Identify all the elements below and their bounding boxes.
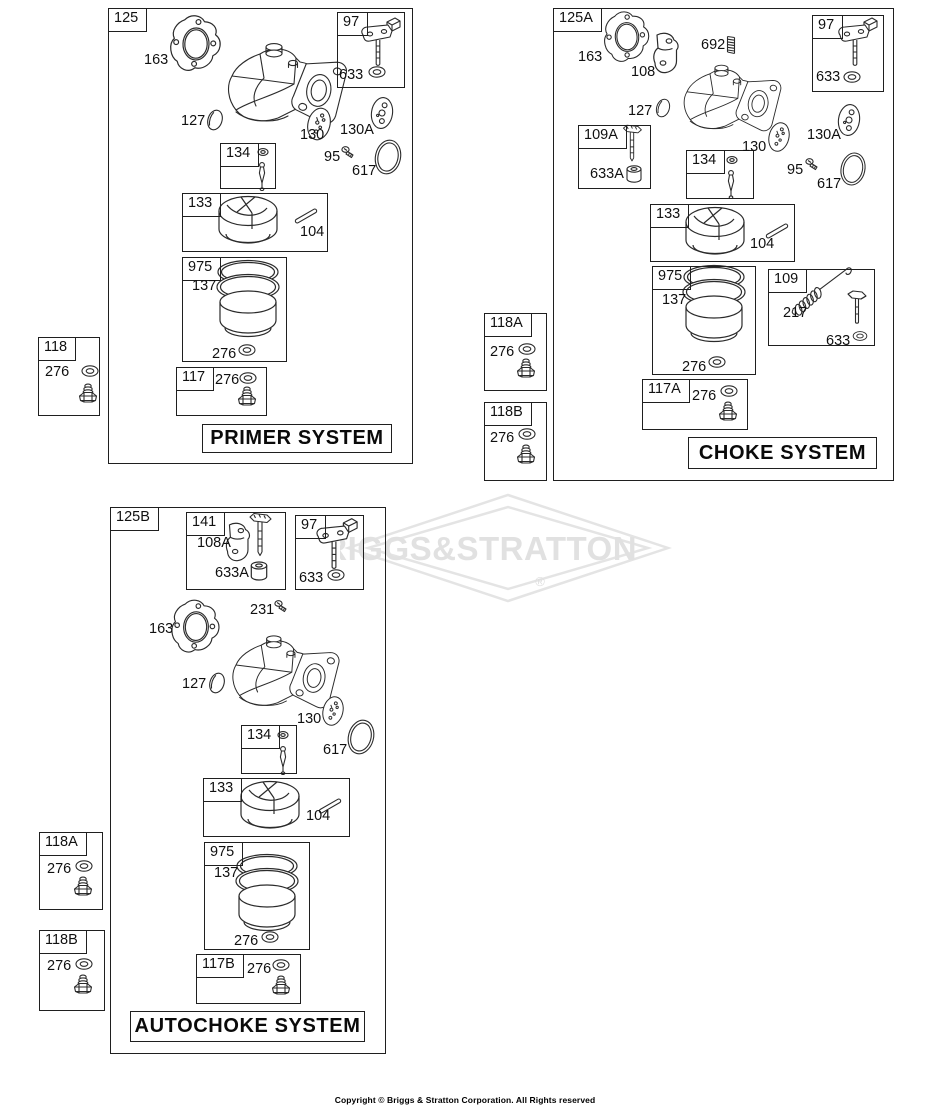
part-callout-276: 276 [234,933,258,949]
box-label-118: 118 [38,337,76,361]
part-callout-617: 617 [817,176,841,192]
frame-label-125a: 125A [553,8,602,32]
part-callout-137: 137 [214,865,238,881]
part-callout-130: 130 [297,711,321,727]
part-callout-231: 231 [250,602,274,618]
part-callout-633A: 633A [215,565,249,581]
part-callout-108A: 108A [197,535,231,551]
part-callout-95: 95 [787,162,803,178]
box-label-134: 134 [686,150,725,174]
part-callout-276: 276 [212,346,236,362]
part-callout-633: 633 [339,67,363,83]
box-label-133: 133 [182,193,221,217]
choke-system-title: CHOKE SYSTEM [688,437,877,469]
box-label-118b: 118B [39,930,87,954]
box-label-118a: 118A [39,832,87,856]
part-callout-137: 137 [192,278,216,294]
box-label-975: 975 [204,842,243,866]
part-callout-130A: 130A [807,127,841,143]
parts-diagram-page: { "watermark": { "text": "BRIGGS&STRATTO… [0,0,930,1110]
part-callout-127: 127 [181,113,205,129]
box-label-97: 97 [337,12,368,36]
box-label-133: 133 [203,778,242,802]
part-callout-163: 163 [144,52,168,68]
copyright-notice: Copyright © Briggs & Stratton Corporatio… [0,1095,930,1105]
box-label-97: 97 [295,515,326,539]
box-label-118b: 118B [484,402,532,426]
part-callout-130: 130 [300,127,324,143]
box-label-109a: 109A [578,125,627,149]
part-callout-104: 104 [750,236,774,252]
box-label-117: 117 [176,367,214,391]
part-callout-633A: 633A [590,166,624,182]
box-label-117b: 117B [196,954,244,978]
part-callout-95: 95 [324,149,340,165]
part-callout-130: 130 [742,139,766,155]
part-callout-127: 127 [628,103,652,119]
box-label-118a: 118A [484,313,532,337]
part-callout-276: 276 [692,388,716,404]
part-callout-276: 276 [490,430,514,446]
part-callout-137: 137 [662,292,686,308]
frame-label-125: 125 [108,8,147,32]
part-callout-108: 108 [631,64,655,80]
part-callout-276: 276 [47,958,71,974]
box-label-134: 134 [220,143,259,167]
part-callout-104: 104 [300,224,324,240]
box-label-117a: 117A [642,379,690,403]
part-callout-163: 163 [578,49,602,65]
part-callout-104: 104 [306,808,330,824]
part-callout-276: 276 [490,344,514,360]
autochoke-system-title: AUTOCHOKE SYSTEM [130,1011,365,1042]
box-label-141: 141 [186,512,225,536]
part-callout-276: 276 [215,372,239,388]
box-label-109: 109 [768,269,807,293]
part-callout-276: 276 [47,861,71,877]
part-callout-127: 127 [182,676,206,692]
part-callout-633: 633 [299,570,323,586]
part-callout-130A: 130A [340,122,374,138]
part-callout-692: 692 [701,37,725,53]
part-callout-633: 633 [826,333,850,349]
part-callout-617: 617 [352,163,376,179]
part-callout-633: 633 [816,69,840,85]
part-callout-617: 617 [323,742,347,758]
primer-system-title: PRIMER SYSTEM [202,424,392,453]
part-callout-276: 276 [45,364,69,380]
box-label-133: 133 [650,204,689,228]
box-label-97: 97 [812,15,843,39]
part-callout-163: 163 [149,621,173,637]
part-callout-217: 217 [783,305,807,321]
frame-label-125b: 125B [110,507,159,531]
part-callout-276: 276 [247,961,271,977]
box-label-134: 134 [241,725,280,749]
box-label-975: 975 [652,266,691,290]
part-callout-276: 276 [682,359,706,375]
